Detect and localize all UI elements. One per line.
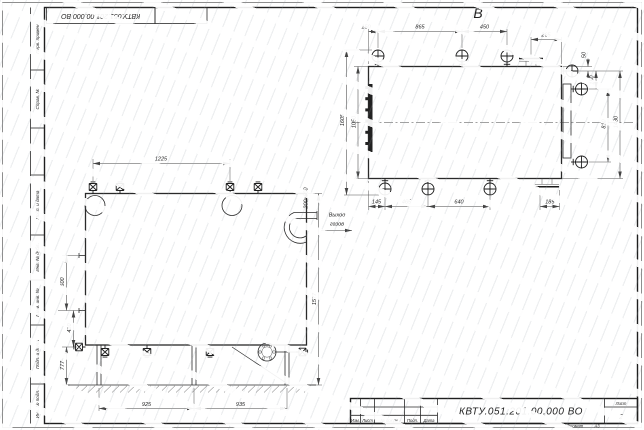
front-dim-top: 1225	[93, 157, 230, 182]
top-dims-bottom: 145 465 640 185	[369, 181, 560, 210]
valve-plan-icon	[484, 179, 496, 196]
side-housing	[563, 84, 571, 158]
top-view: В 150 865 450	[340, 5, 634, 210]
boiler-body-front	[86, 194, 307, 346]
valve-icon	[143, 346, 151, 358]
title-block: Изм. Лист № докум. Подп. Дата КВТУ.051.2…	[351, 399, 638, 429]
title-col-header: Лист	[361, 418, 373, 423]
margin-field: Взам. инв. №	[35, 288, 40, 316]
margin-field: Инв. № подл.	[35, 390, 40, 419]
svg-text:810: 810	[602, 118, 608, 128]
title-col-header: № докум.	[380, 418, 398, 423]
ground-hatch	[72, 386, 311, 393]
valve-icon	[206, 346, 214, 358]
margin-field: Инв. № дубл.	[35, 243, 40, 271]
margin-field: Перв. примен.	[35, 23, 40, 54]
title-col-header: Изм.	[351, 418, 360, 423]
valve-plan-icon	[372, 50, 384, 67]
valve-icon	[296, 348, 308, 356]
svg-text:925: 925	[142, 402, 152, 408]
gas-outlet-note-line2: газов	[330, 222, 344, 228]
drawing-designation: КВТУ.051.201.00.000 ВО	[459, 407, 583, 418]
bottom-nozzle	[535, 179, 559, 187]
svg-text:410: 410	[67, 322, 73, 332]
view-label: В	[473, 5, 482, 21]
title-col-header: Дата	[422, 418, 435, 423]
svg-text:1225: 1225	[155, 157, 168, 163]
valve-plan-icon	[501, 50, 513, 67]
sheet-label: Лист	[615, 401, 627, 406]
margin-column: Перв. примен. Справ. № Подп. и дата Инв.…	[31, 23, 45, 418]
support-legs	[97, 345, 289, 385]
valve-plan-icon	[422, 179, 434, 196]
valve-icon	[101, 346, 109, 358]
svg-text:500: 500	[60, 276, 66, 286]
svg-text:265: 265	[540, 33, 551, 39]
gas-outlet-note: Выход газов	[321, 213, 352, 231]
top-nozzle	[519, 59, 543, 67]
svg-text:465: 465	[402, 200, 412, 206]
valve-icon	[226, 182, 234, 194]
margin-field: Справ. №	[35, 89, 40, 110]
valve-plan-icon	[456, 50, 468, 67]
corner-designation-block: КВТУ.051.201.00.000 ВО	[47, 8, 208, 24]
svg-text:150: 150	[590, 74, 596, 84]
svg-text:865: 865	[415, 25, 425, 31]
svg-text:1605: 1605	[340, 113, 346, 126]
svg-text:150: 150	[361, 25, 371, 31]
margin-cell-lines	[31, 70, 45, 384]
svg-text:1577: 1577	[312, 292, 318, 305]
valve-icon	[116, 182, 124, 194]
wall-bar	[369, 84, 373, 152]
sheet-number: 2	[618, 414, 623, 421]
svg-text:450: 450	[480, 25, 490, 31]
front-dims-left: 500 410 777	[58, 256, 80, 386]
valve-plan-icon	[379, 179, 391, 196]
front-view: 1225 Выход газов 200х600 1577	[58, 157, 352, 412]
left-wall-stubs	[79, 253, 86, 313]
flange-connection	[258, 343, 276, 361]
title-col-header: Подп.	[407, 418, 418, 423]
margin-field: Подп. и дата	[35, 340, 40, 369]
corner-designation-text: КВТУ.051.201.00.000 ВО	[61, 12, 141, 19]
front-dim-right: 1577	[308, 194, 322, 386]
gas-outlet-note-line1: Выход	[329, 213, 346, 219]
nozzle-circle	[222, 196, 242, 216]
svg-text:935: 935	[236, 402, 246, 408]
svg-text:185: 185	[545, 200, 555, 206]
valve-plan-icon	[571, 156, 588, 168]
svg-text:777: 777	[60, 360, 66, 370]
nozzle-circle	[85, 196, 105, 216]
svg-text:1050: 1050	[352, 115, 358, 128]
valve-plan-icon	[562, 65, 579, 77]
svg-text:145: 145	[372, 200, 382, 206]
valve-plan-icon	[571, 83, 588, 95]
drawing-sheet: Перв. примен. Справ. № Подп. и дата Инв.…	[0, 0, 644, 430]
valve-icon	[74, 343, 86, 351]
margin-field: Подп. и дата	[35, 190, 40, 219]
format-label: Формат	[567, 423, 584, 428]
svg-text:50: 50	[582, 51, 588, 58]
drawing-canvas: Перв. примен. Справ. № Подп. и дата Инв.…	[0, 0, 644, 430]
valve-icon	[254, 182, 262, 194]
outlet-size-dim: 200х600	[304, 187, 310, 210]
valve-icon	[89, 182, 97, 194]
svg-text:1430: 1430	[614, 115, 620, 128]
gas-outlet	[284, 211, 317, 243]
format-value: А3	[593, 423, 600, 428]
svg-text:640: 640	[454, 200, 464, 206]
